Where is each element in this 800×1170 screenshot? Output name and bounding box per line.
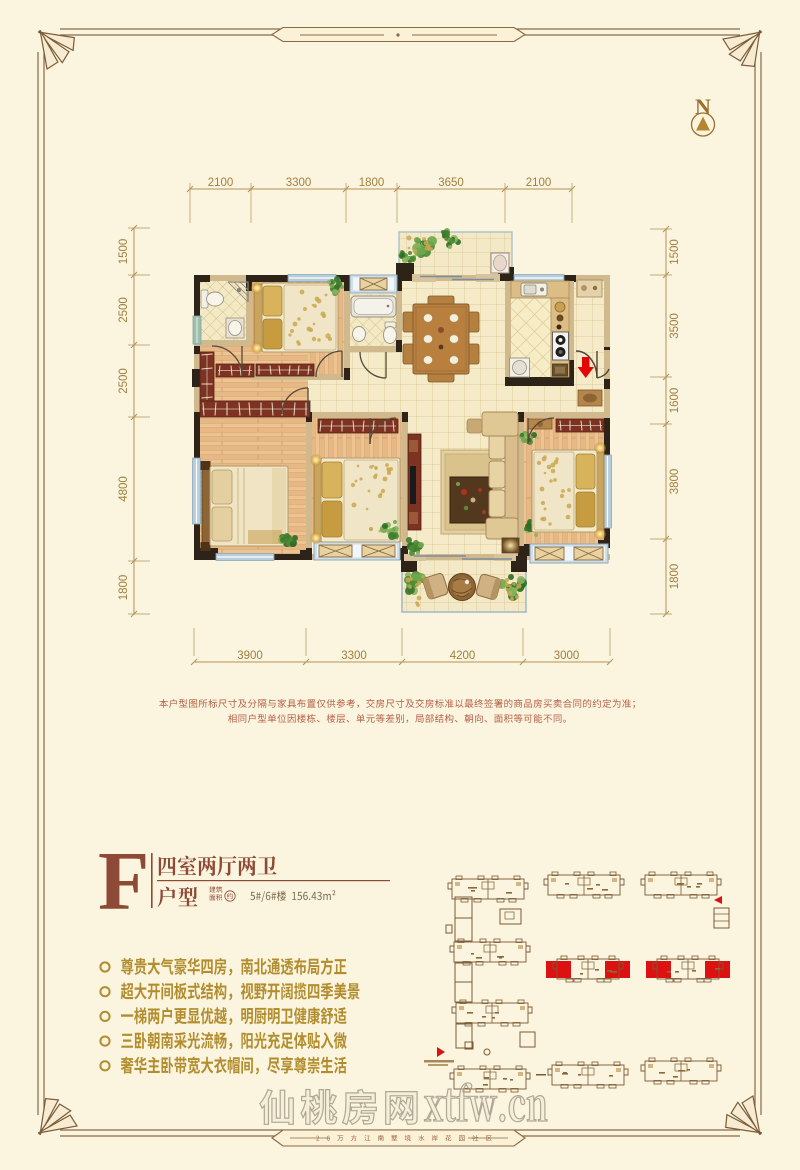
svg-text:3650: 3650 (438, 177, 464, 189)
svg-text:3300: 3300 (341, 650, 367, 662)
svg-text:F: F (98, 835, 149, 928)
svg-text:3500: 3500 (669, 313, 681, 339)
svg-text:3000: 3000 (554, 650, 580, 662)
svg-text:1800: 1800 (669, 564, 681, 590)
svg-text:1600: 1600 (669, 388, 681, 414)
svg-text:4800: 4800 (118, 476, 130, 502)
svg-text:2500: 2500 (118, 368, 130, 394)
svg-text:2500: 2500 (118, 297, 130, 323)
svg-text:1800: 1800 (359, 177, 385, 189)
svg-text:3900: 3900 (237, 650, 263, 662)
svg-text:N: N (695, 94, 711, 119)
svg-text:4200: 4200 (450, 650, 476, 662)
svg-text:1800: 1800 (118, 575, 130, 601)
svg-text:2100: 2100 (208, 177, 234, 189)
svg-text:2100: 2100 (526, 177, 552, 189)
svg-text:3300: 3300 (286, 177, 312, 189)
svg-text:1500: 1500 (118, 239, 130, 265)
svg-text:1500: 1500 (669, 239, 681, 265)
svg-text:3800: 3800 (669, 469, 681, 495)
